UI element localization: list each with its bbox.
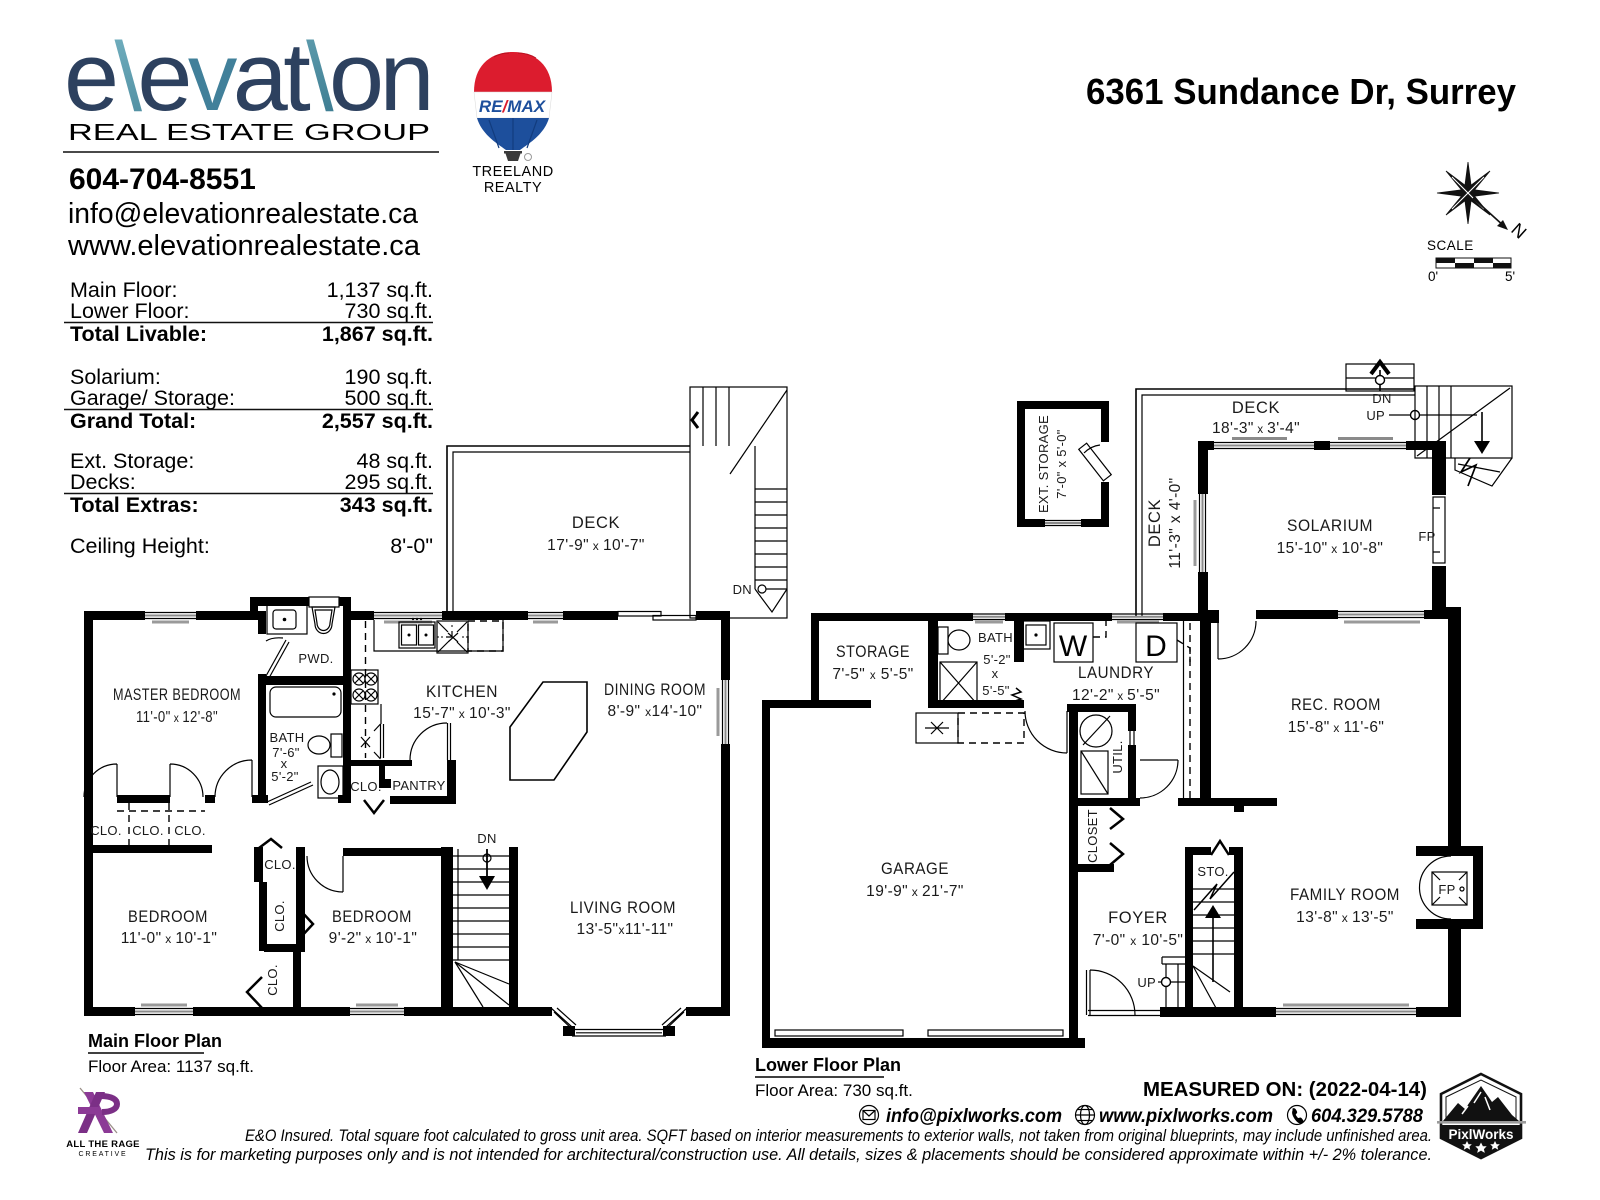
svg-text:Lower Floor:: Lower Floor: xyxy=(70,299,190,323)
svg-text:SCALE: SCALE xyxy=(1427,238,1474,253)
svg-text:W: W xyxy=(1059,630,1088,663)
svg-text:FOYER: FOYER xyxy=(1108,909,1168,927)
svg-text:Garage/ Storage:: Garage/ Storage: xyxy=(70,386,235,410)
svg-text:604.329.5788: 604.329.5788 xyxy=(1311,1105,1423,1127)
svg-text:CLO.: CLO. xyxy=(350,779,382,794)
svg-text:x: x xyxy=(992,666,999,681)
svg-text:Floor Area: 1137 sq.ft.: Floor Area: 1137 sq.ft. xyxy=(88,1057,254,1076)
svg-text:PixlWorks: PixlWorks xyxy=(1448,1127,1513,1142)
svg-text:UP: UP xyxy=(1137,975,1156,990)
svg-text:REAL ESTATE GROUP: REAL ESTATE GROUP xyxy=(68,119,430,145)
svg-text:E&O Insured. Total square foo: E&O Insured. Total square foot calculate… xyxy=(245,1127,1432,1145)
svg-text:Grand Total:: Grand Total: xyxy=(70,409,196,433)
svg-text:ALL THE RAGE: ALL THE RAGE xyxy=(66,1139,140,1150)
svg-text:This is for marketing purposes: This is for marketing purposes only and … xyxy=(145,1146,1432,1164)
svg-text:19'-9" x 21'-7": 19'-9" x 21'-7" xyxy=(866,883,964,900)
svg-text:www.pixlworks.com: www.pixlworks.com xyxy=(1099,1105,1273,1127)
svg-text:FAMILY ROOM: FAMILY ROOM xyxy=(1290,886,1400,904)
svg-text:5'-2": 5'-2" xyxy=(271,769,298,784)
svg-text:KITCHEN: KITCHEN xyxy=(426,683,498,701)
svg-text:SOLARIUM: SOLARIUM xyxy=(1287,517,1373,535)
svg-text:15'-7" x 10'-3": 15'-7" x 10'-3" xyxy=(413,705,511,722)
svg-text:FP: FP xyxy=(1418,529,1435,544)
svg-text:DECK: DECK xyxy=(572,514,620,532)
svg-text:5'-2": 5'-2" xyxy=(983,652,1010,667)
svg-text:6361 Sundance Dr, Surrey: 6361 Sundance Dr, Surrey xyxy=(1086,71,1516,112)
svg-text:www.elevationrealestate.ca: www.elevationrealestate.ca xyxy=(67,230,421,262)
svg-text:1,867 sq.ft.: 1,867 sq.ft. xyxy=(322,322,433,346)
svg-text:e\evat\on: e\evat\on xyxy=(64,22,430,131)
svg-text:CREATIVE: CREATIVE xyxy=(79,1151,128,1158)
svg-text:Total Livable:: Total Livable: xyxy=(70,322,207,346)
svg-text:13'-8" x 13'-5": 13'-8" x 13'-5" xyxy=(1296,909,1394,926)
svg-text:STORAGE: STORAGE xyxy=(836,643,910,661)
svg-text:Ceiling Height:: Ceiling Height: xyxy=(70,534,210,558)
svg-text:Floor Area: 730 sq.ft.: Floor Area: 730 sq.ft. xyxy=(755,1081,913,1100)
svg-text:5'-5": 5'-5" xyxy=(982,683,1009,698)
svg-text:MASTER BEDROOM: MASTER BEDROOM xyxy=(113,686,241,704)
svg-text:0': 0' xyxy=(1428,269,1438,284)
svg-text:BEDROOM: BEDROOM xyxy=(332,908,412,926)
svg-text:info@pixlworks.com: info@pixlworks.com xyxy=(886,1105,1062,1127)
svg-text:STO.: STO. xyxy=(1197,864,1228,879)
svg-text:CLOSET: CLOSET xyxy=(1085,809,1100,863)
svg-text:BEDROOM: BEDROOM xyxy=(128,908,208,926)
svg-text:GARAGE: GARAGE xyxy=(881,860,949,878)
svg-text:CLO.: CLO. xyxy=(132,823,164,838)
svg-text:LIVING ROOM: LIVING ROOM xyxy=(570,899,676,917)
svg-text:15'-10" x 10'-8": 15'-10" x 10'-8" xyxy=(1277,540,1384,557)
svg-text:D: D xyxy=(1145,630,1167,663)
svg-text:8'-9" x14'-10": 8'-9" x14'-10" xyxy=(608,703,703,720)
svg-text:DECK: DECK xyxy=(1146,499,1164,547)
svg-text:DN: DN xyxy=(477,831,496,846)
svg-text:PWD.: PWD. xyxy=(298,651,333,666)
svg-text:11'-0" x 12'-8": 11'-0" x 12'-8" xyxy=(136,709,218,726)
svg-text:DECK: DECK xyxy=(1232,399,1280,417)
svg-text:CLO.: CLO. xyxy=(264,857,296,872)
svg-text:9'-2" x 10'-1": 9'-2" x 10'-1" xyxy=(329,930,418,947)
svg-text:7'-0" x 5'-0": 7'-0" x 5'-0" xyxy=(1054,429,1069,498)
svg-text:Main Floor Plan: Main Floor Plan xyxy=(88,1031,222,1051)
svg-text:CLO.: CLO. xyxy=(272,900,287,932)
svg-text:DN: DN xyxy=(1372,391,1391,406)
svg-text:BATH: BATH xyxy=(978,630,1013,645)
svg-text:MEASURED ON: (2022-04-14): MEASURED ON: (2022-04-14) xyxy=(1143,1078,1427,1101)
svg-text:TREELAND: TREELAND xyxy=(472,164,553,180)
svg-text:Lower Floor Plan: Lower Floor Plan xyxy=(755,1055,901,1075)
svg-text:CLO.: CLO. xyxy=(90,823,122,838)
svg-text:EXT. STORAGE: EXT. STORAGE xyxy=(1036,415,1051,513)
svg-text:RE/MAX: RE/MAX xyxy=(479,97,547,116)
svg-text:Total Extras:: Total Extras: xyxy=(70,493,199,517)
svg-text:CLO.: CLO. xyxy=(265,964,280,996)
svg-text:UP: UP xyxy=(1366,408,1385,423)
svg-text:604-704-8551: 604-704-8551 xyxy=(69,163,256,196)
svg-text:Decks:: Decks: xyxy=(70,470,136,494)
svg-text:DN: DN xyxy=(733,582,752,597)
svg-text:info@elevationrealestate.ca: info@elevationrealestate.ca xyxy=(68,198,419,230)
svg-text:13'-5"x11'-11": 13'-5"x11'-11" xyxy=(577,921,674,938)
svg-text:15'-8" x 11'-6": 15'-8" x 11'-6" xyxy=(1288,719,1385,736)
svg-text:LAUNDRY: LAUNDRY xyxy=(1078,664,1154,682)
svg-text:CLO.: CLO. xyxy=(174,823,206,838)
svg-text:DINING ROOM: DINING ROOM xyxy=(604,681,706,699)
svg-text:17'-9" x 10'-7": 17'-9" x 10'-7" xyxy=(547,537,645,554)
svg-text:FP: FP xyxy=(1438,882,1455,897)
svg-text:BATH: BATH xyxy=(270,730,305,745)
svg-text:UTIL.: UTIL. xyxy=(1110,740,1125,773)
svg-text:500 sq.ft.: 500 sq.ft. xyxy=(345,386,433,410)
svg-text:730 sq.ft.: 730 sq.ft. xyxy=(345,299,433,323)
svg-text:7'-0" x 10'-5": 7'-0" x 10'-5" xyxy=(1093,932,1184,949)
svg-text:REC. ROOM: REC. ROOM xyxy=(1291,696,1381,714)
svg-text:REALTY: REALTY xyxy=(484,180,542,196)
svg-text:295 sq.ft.: 295 sq.ft. xyxy=(345,470,433,494)
svg-text:11'-0" x 10'-1": 11'-0" x 10'-1" xyxy=(121,930,218,947)
svg-text:2,557 sq.ft.: 2,557 sq.ft. xyxy=(322,409,433,433)
svg-text:343 sq.ft.: 343 sq.ft. xyxy=(340,493,433,517)
svg-text:PANTRY: PANTRY xyxy=(392,778,445,793)
svg-text:5': 5' xyxy=(1505,269,1515,284)
svg-text:8'-0": 8'-0" xyxy=(390,534,433,558)
svg-text:11'-3" x 4'-0": 11'-3" x 4'-0" xyxy=(1167,477,1184,568)
